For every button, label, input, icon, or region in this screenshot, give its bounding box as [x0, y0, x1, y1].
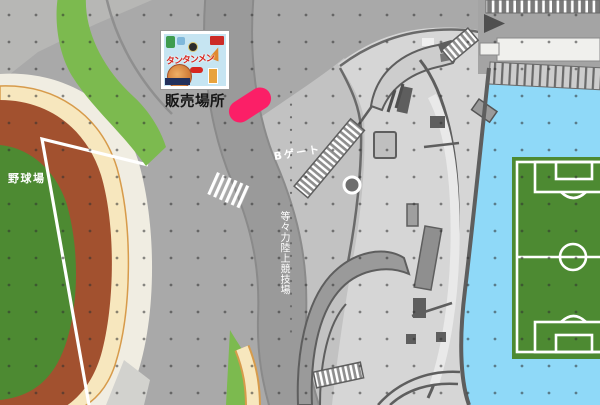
package-badge-blue	[177, 37, 185, 45]
grid-dots	[0, 0, 600, 405]
package-seal-icon	[188, 42, 198, 52]
map-graphics	[0, 0, 600, 405]
package-sub-badge	[190, 67, 203, 73]
venue-map: タンタンメン 販売場所 Bゲート 野球場 等々力陸上競技場	[0, 0, 600, 405]
package-image: タンタンメン	[164, 34, 226, 86]
product-poster: タンタンメン	[160, 30, 230, 90]
glass-image	[208, 68, 218, 84]
package-badge-green	[166, 36, 175, 48]
package-badge-red	[210, 36, 224, 45]
package-bottom-strip	[165, 78, 190, 85]
